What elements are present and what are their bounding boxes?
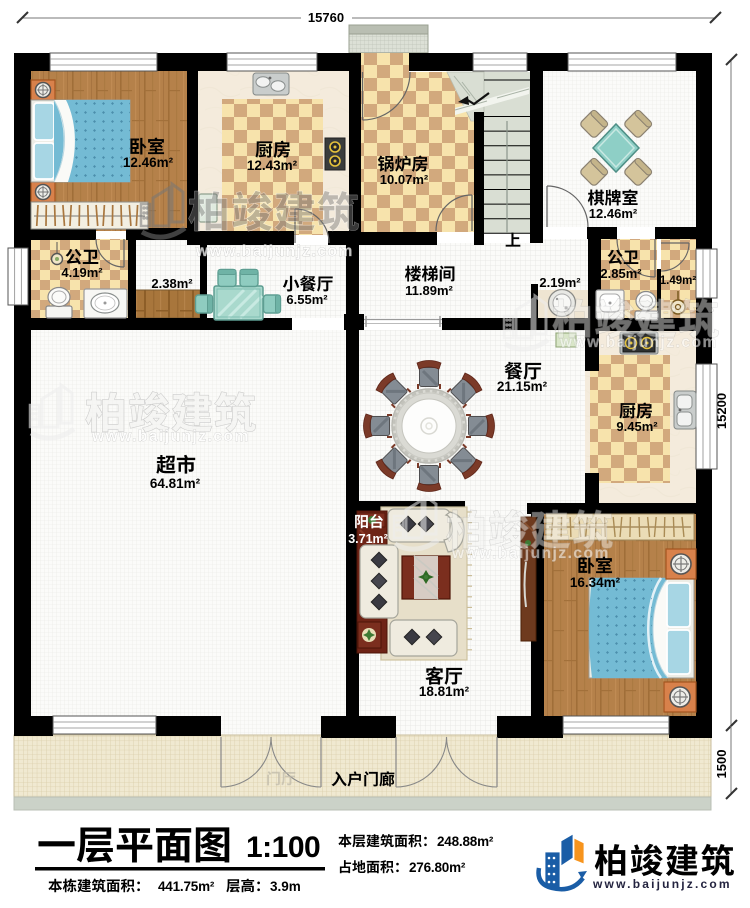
svg-text:6.55m²: 6.55m²: [286, 292, 328, 307]
svg-text:www.baijunjz.com: www.baijunjz.com: [592, 877, 732, 891]
svg-text:1500: 1500: [714, 750, 729, 779]
svg-text:441.75m²: 441.75m²: [158, 879, 215, 894]
svg-text:18.81m²: 18.81m²: [419, 684, 470, 699]
svg-text:www.baijunjz.com: www.baijunjz.com: [195, 243, 354, 260]
svg-text:248.88m²: 248.88m²: [437, 834, 494, 849]
svg-text:12.46m²: 12.46m²: [123, 155, 174, 170]
svg-text:64.81m²: 64.81m²: [150, 476, 201, 491]
svg-text:9.45m²: 9.45m²: [616, 419, 658, 434]
svg-text:4.19m²: 4.19m²: [61, 265, 103, 280]
svg-text:1.49m²: 1.49m²: [660, 275, 697, 287]
svg-text:3.9m: 3.9m: [270, 879, 301, 894]
svg-text:12.43m²: 12.43m²: [247, 158, 298, 173]
svg-text:3.71m²: 3.71m²: [348, 532, 388, 546]
svg-text:1:100: 1:100: [246, 831, 320, 864]
svg-text:www.baijunjz.com: www.baijunjz.com: [559, 334, 718, 351]
svg-text:276.80m²: 276.80m²: [409, 860, 466, 875]
svg-text:www.baijunjz.com: www.baijunjz.com: [91, 428, 250, 445]
svg-text:11.89m²: 11.89m²: [405, 283, 453, 298]
svg-text:15760: 15760: [308, 10, 344, 25]
svg-text:12.46m²: 12.46m²: [589, 206, 638, 221]
svg-text:21.15m²: 21.15m²: [497, 379, 548, 394]
svg-text:www.baijunjz.com: www.baijunjz.com: [451, 545, 610, 562]
svg-text:2.85m²: 2.85m²: [600, 266, 642, 281]
svg-text:2.19m²: 2.19m²: [539, 275, 581, 290]
svg-text:2.38m²: 2.38m²: [151, 276, 193, 291]
svg-text:10.07m²: 10.07m²: [380, 172, 429, 187]
svg-text:16.34m²: 16.34m²: [570, 575, 621, 590]
